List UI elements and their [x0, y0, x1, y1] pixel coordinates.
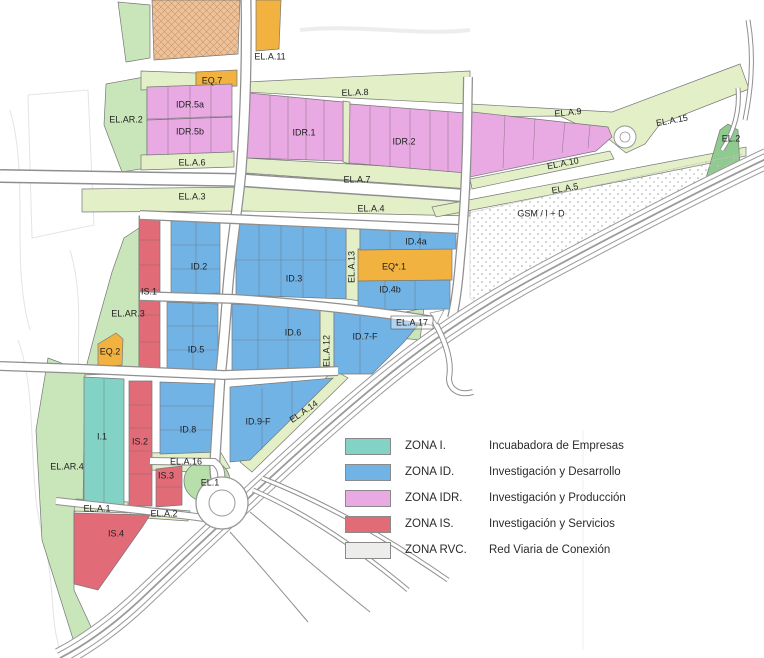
map-label-el-a-13: EL.A.13 — [346, 251, 356, 283]
legend-description: Incuabadora de Empresas — [489, 440, 624, 452]
legend-zone-label: ZONA RVC. — [405, 544, 489, 556]
area-hatched-north — [152, 0, 240, 60]
legend-description: Investigación y Producción — [489, 492, 626, 504]
map-label-el-ar-4: EL.AR.4 — [50, 461, 84, 471]
legend-row: ZONA ID.Investigación y Desarrollo — [345, 459, 626, 485]
map-label-idr-2: IDR.2 — [392, 136, 415, 146]
zoning-map-sheet: EL.A.11EQ.7IDR.5aIDR.5bEL.AR.2EL.A.6EL.A… — [0, 0, 764, 658]
legend-row: ZONA IS.Investigación y Servicios — [345, 511, 626, 537]
map-label-id-3: ID.3 — [286, 273, 303, 283]
map-label-i-1: I.1 — [97, 431, 107, 441]
block-id-5 — [167, 302, 218, 374]
legend-swatch-zona-i- — [345, 438, 391, 455]
map-label-el-a-17: EL.A.17 — [396, 317, 428, 327]
legend-row: ZONA RVC.Red Viaria de Conexión — [345, 537, 626, 563]
block-id-8 — [160, 382, 218, 454]
legend-zone-label: ZONA I. — [405, 440, 489, 452]
map-label-id-2: ID.2 — [191, 261, 208, 271]
block-id-4b — [358, 280, 450, 310]
map-label-el-a-4: EL.A.4 — [357, 203, 384, 213]
map-label-idr-5a: IDR.5a — [176, 99, 204, 109]
legend-zone-label: ZONA ID. — [405, 466, 489, 478]
map-label-id-4b: ID.4b — [379, 284, 401, 294]
map-label-el-a-12: EL.A.12 — [321, 335, 331, 367]
map-label-el-a-2: EL.A.2 — [150, 508, 177, 518]
map-label-is-2: IS.2 — [132, 436, 148, 446]
map-label-id-5: ID.5 — [188, 344, 205, 354]
map-label-id-6: ID.6 — [285, 327, 302, 337]
map-label-eq-2: EQ.2 — [100, 346, 121, 356]
legend-swatch-zona-id- — [345, 464, 391, 481]
legend-row: ZONA I.Incuabadora de Empresas — [345, 433, 626, 459]
map-label-el-a-7: EL.A.7 — [343, 174, 370, 184]
map-label-id-9-f: ID.9-F — [245, 416, 271, 426]
legend-zone-label: ZONA IS. — [405, 518, 489, 530]
map-label-idr-1: IDR.1 — [292, 127, 315, 137]
map-label-is-1: IS.1 — [141, 286, 157, 296]
roundabout-small-inner — [620, 132, 630, 142]
legend-swatch-zona-rvc- — [345, 542, 391, 559]
map-label-idr-5b: IDR.5b — [176, 126, 204, 136]
map-label-el-a-6: EL.A.6 — [178, 157, 205, 167]
legend-swatch-zona-idr- — [345, 490, 391, 507]
map-label-id-8: ID.8 — [180, 424, 197, 434]
legend-swatch-zona-is- — [345, 516, 391, 533]
map-label-el-a-16: EL.A.16 — [170, 456, 202, 466]
map-label-id-4a: ID.4a — [405, 236, 427, 246]
legend-row: ZONA IDR.Investigación y Producción — [345, 485, 626, 511]
map-label-is-3: IS.3 — [158, 470, 174, 480]
map-label-eq-1: EQ*.1 — [382, 261, 406, 271]
block-id-2 — [171, 219, 220, 295]
legend-description: Investigación y Servicios — [489, 518, 615, 530]
block-id-6 — [232, 304, 320, 375]
map-label-el-1: EL.1 — [201, 477, 220, 487]
map-label-el-a-1: EL.A.1 — [83, 503, 110, 513]
map-label-el-ar-3: EL.AR.3 — [111, 308, 145, 318]
map-label-eq-7: EQ.7 — [202, 75, 223, 85]
map-label-el-2: EL.2 — [722, 133, 741, 143]
roundabout-main-inner — [209, 490, 235, 516]
legend-description: Red Viaria de Conexión — [489, 544, 610, 556]
map-label-is-4: IS.4 — [108, 528, 124, 538]
map-label-id-7-f: ID.7-F — [352, 331, 378, 341]
map-label-el-a-3: EL.A.3 — [178, 191, 205, 201]
map-label-gsm-i-d: GSM / I + D — [517, 208, 565, 218]
block-orange-north — [256, 0, 281, 51]
map-label-el-a-11: EL.A.11 — [254, 51, 285, 61]
map-label-el-ar-2: EL.AR.2 — [109, 114, 143, 124]
map-label-el-a-8: EL.A.8 — [341, 87, 368, 98]
legend-zone-label: ZONA IDR. — [405, 492, 489, 504]
legend-description: Investigación y Desarrollo — [489, 466, 621, 478]
legend: ZONA I.Incuabadora de EmpresasZONA ID.In… — [345, 433, 626, 563]
